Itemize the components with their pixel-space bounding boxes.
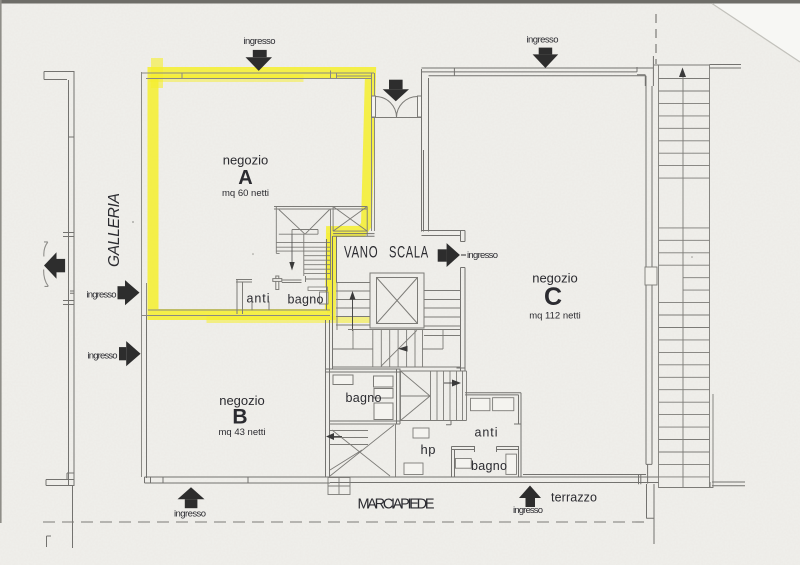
svg-text:A: A (238, 167, 252, 189)
svg-text:anti: anti (475, 426, 498, 440)
svg-text:MARCIAPIEDE: MARCIAPIEDE (358, 497, 436, 513)
svg-text:SCALA: SCALA (389, 244, 429, 262)
svg-text:VANO: VANO (344, 244, 378, 262)
svg-text:hp: hp (421, 442, 436, 457)
svg-text:ingresso: ingresso (87, 290, 117, 301)
svg-text:mq 60 netti: mq 60 netti (222, 188, 269, 199)
svg-text:ingresso: ingresso (88, 351, 118, 362)
svg-text:bagno: bagno (346, 391, 382, 405)
svg-text:terrazzo: terrazzo (551, 491, 597, 505)
svg-text:B: B (232, 406, 247, 429)
svg-text:GALLERIA: GALLERIA (106, 193, 123, 267)
svg-text:C: C (544, 283, 562, 311)
svg-text:mq 43 netti: mq 43 netti (219, 427, 266, 438)
svg-text:bagno: bagno (471, 459, 507, 473)
svg-text:bagno: bagno (288, 293, 324, 307)
svg-text:ingresso: ingresso (467, 250, 498, 261)
svg-text:negozio: negozio (223, 153, 269, 168)
svg-text:mq 112 netti: mq 112 netti (529, 311, 581, 322)
svg-text:ingresso: ingresso (244, 36, 276, 47)
svg-text:ingresso: ingresso (513, 505, 543, 516)
svg-text:ingresso: ingresso (527, 34, 559, 45)
svg-text:ingresso: ingresso (174, 509, 206, 520)
svg-text:anti: anti (247, 292, 270, 306)
